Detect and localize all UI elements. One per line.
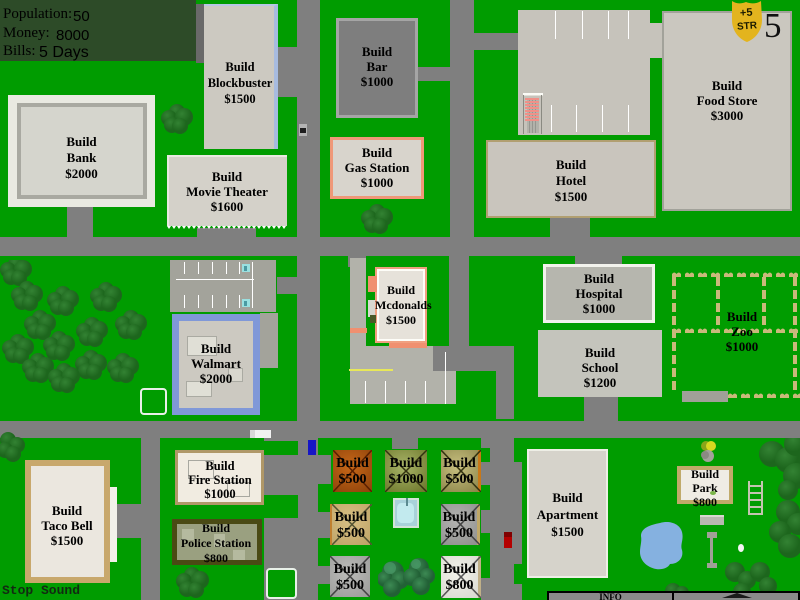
svg-text:STR: STR: [737, 20, 758, 32]
svg-text:+5: +5: [740, 7, 753, 20]
